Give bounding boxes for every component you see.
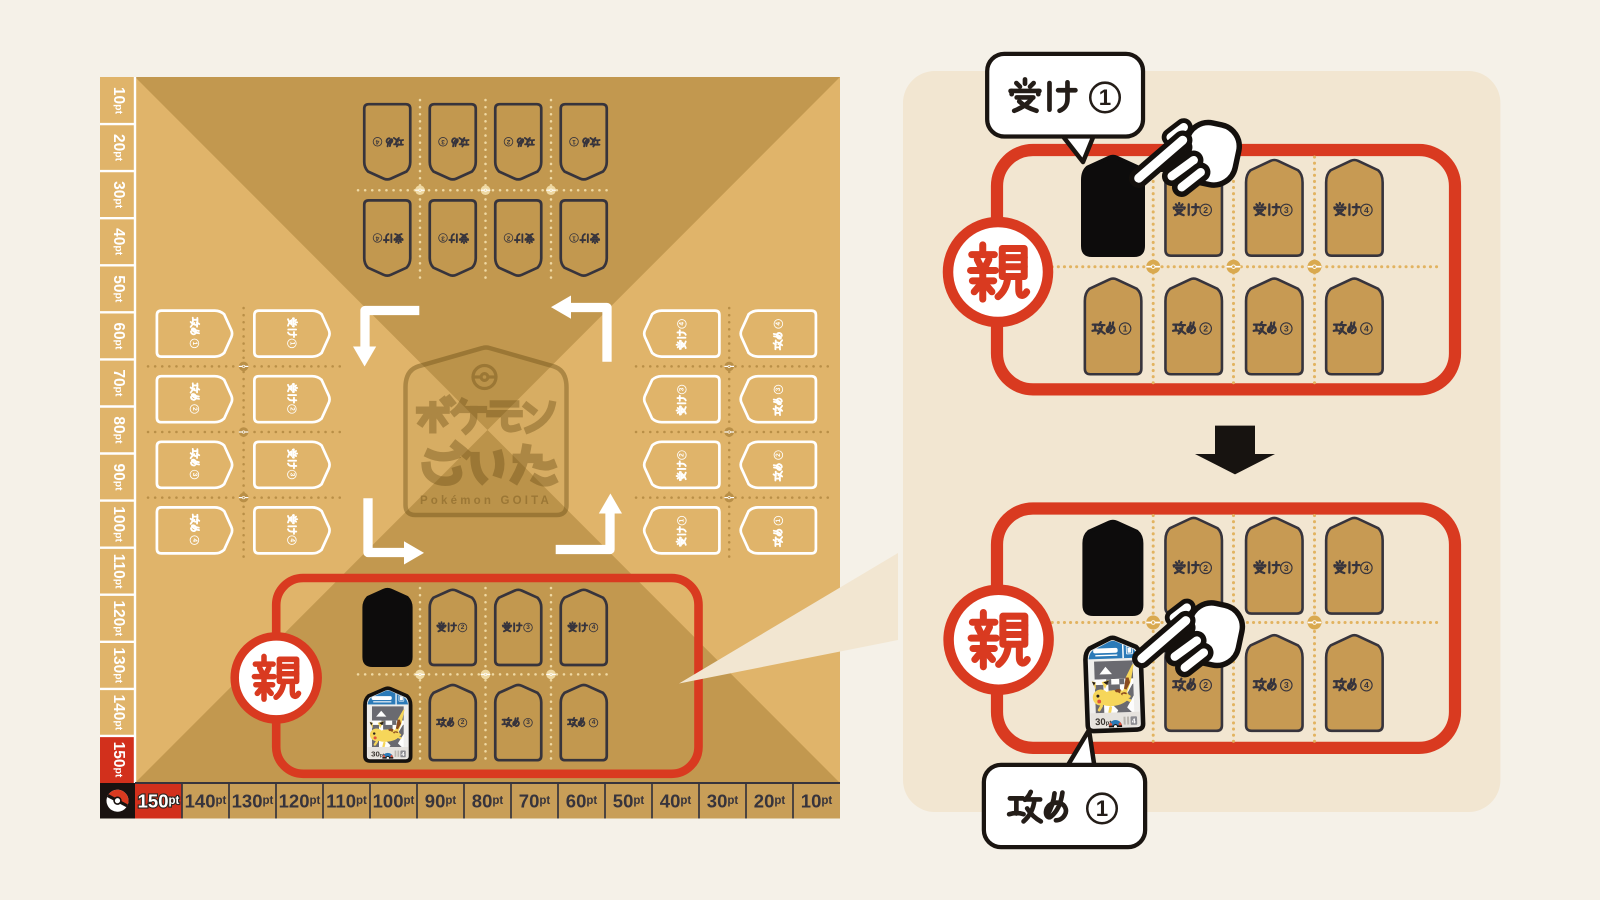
svg-text:100pt: 100pt — [110, 506, 127, 542]
svg-text:80pt: 80pt — [110, 416, 127, 444]
svg-text:140pt: 140pt — [110, 695, 127, 731]
svg-text:Pokémon GOITA: Pokémon GOITA — [420, 495, 552, 507]
svg-text:120pt: 120pt — [110, 600, 127, 636]
svg-text:30pt: 30pt — [110, 181, 127, 209]
svg-text:60pt: 60pt — [110, 322, 127, 350]
svg-text:70pt: 70pt — [110, 369, 127, 397]
svg-text:50pt: 50pt — [110, 275, 127, 303]
svg-text:90pt: 90pt — [110, 464, 127, 492]
svg-text:40pt: 40pt — [110, 228, 127, 256]
svg-text:150pt: 150pt — [110, 742, 127, 778]
svg-text:130pt: 130pt — [110, 647, 127, 683]
svg-text:10pt: 10pt — [110, 87, 127, 115]
svg-text:20pt: 20pt — [110, 134, 127, 162]
svg-text:110pt: 110pt — [110, 554, 127, 589]
